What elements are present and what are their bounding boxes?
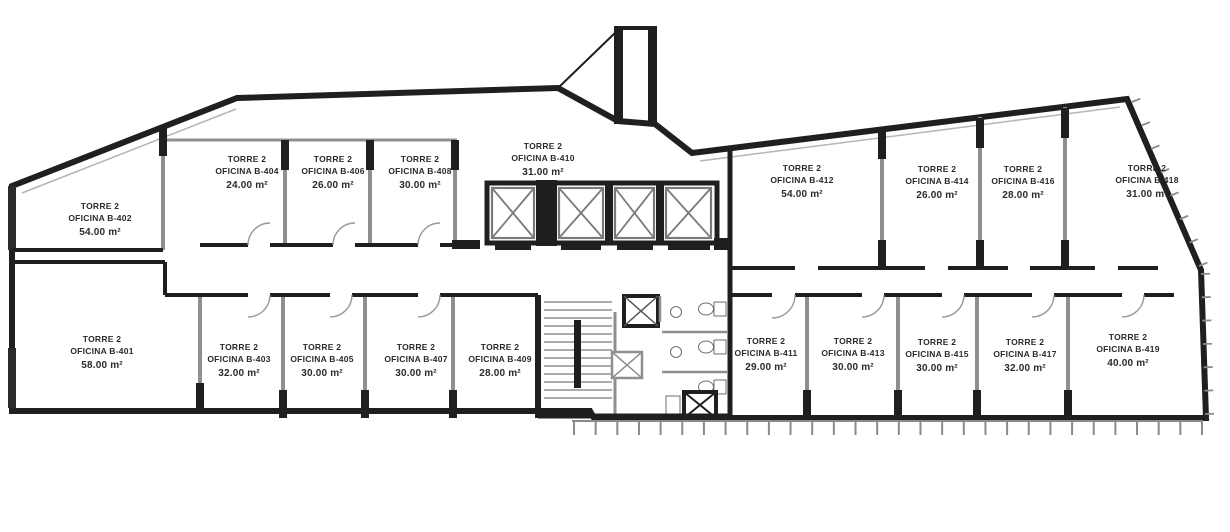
room-unit-text: OFICINA B-404	[215, 166, 278, 176]
room-area-text: 30.00 m²	[301, 368, 343, 379]
room-label-b416: TORRE 2 OFICINA B-416 28.00 m²	[991, 164, 1054, 201]
room-tower-text: TORRE 2	[918, 337, 956, 347]
room-tower-text: TORRE 2	[524, 141, 562, 151]
room-label-b413: TORRE 2 OFICINA B-413 30.00 m²	[821, 336, 884, 373]
elevator-bank	[452, 180, 730, 250]
room-area-text: 31.00 m²	[1126, 189, 1168, 200]
room-label-b402: TORRE 2 OFICINA B-402 54.00 m²	[68, 201, 131, 238]
stair-stringer	[574, 320, 581, 388]
room-area-text: 32.00 m²	[1004, 363, 1046, 374]
room-label-b409: TORRE 2 OFICINA B-409 28.00 m²	[468, 342, 531, 379]
toilet	[699, 340, 727, 354]
room-unit-text: OFICINA B-413	[821, 348, 884, 358]
room-area-text: 24.00 m²	[226, 180, 268, 191]
duct-x-box	[612, 352, 642, 378]
room-area-text: 40.00 m²	[1107, 358, 1149, 369]
room-unit-text: OFICINA B-408	[388, 166, 451, 176]
room-tower-text: TORRE 2	[918, 164, 956, 174]
room-tower-text: TORRE 2	[1006, 337, 1044, 347]
room-label-b410: TORRE 2 OFICINA B-410 31.00 m²	[511, 141, 574, 178]
room-area-text: 28.00 m²	[479, 368, 521, 379]
room-unit-text: OFICINA B-402	[68, 213, 131, 223]
roof-shaft	[614, 26, 657, 126]
room-tower-text: TORRE 2	[1109, 332, 1147, 342]
room-tower-text: TORRE 2	[783, 163, 821, 173]
room-area-text: 29.00 m²	[745, 362, 787, 373]
room-area-text: 26.00 m²	[312, 180, 354, 191]
room-tower-text: TORRE 2	[314, 154, 352, 164]
room-tower-text: TORRE 2	[834, 336, 872, 346]
room-tower-text: TORRE 2	[228, 154, 266, 164]
room-label-b406: TORRE 2 OFICINA B-406 26.00 m²	[301, 154, 364, 191]
room-area-text: 26.00 m²	[916, 190, 958, 201]
room-unit-text: OFICINA B-418	[1115, 175, 1178, 185]
room-label-b404: TORRE 2 OFICINA B-404 24.00 m²	[215, 154, 278, 191]
room-unit-text: OFICINA B-407	[384, 354, 447, 364]
duct-x-box	[624, 296, 658, 326]
room-tower-text: TORRE 2	[83, 334, 121, 344]
room-tower-text: TORRE 2	[303, 342, 341, 352]
room-tower-text: TORRE 2	[747, 336, 785, 346]
service-closet	[666, 396, 680, 416]
room-unit-text: OFICINA B-415	[905, 349, 968, 359]
room-area-text: 31.00 m²	[522, 167, 564, 178]
room-area-text: 58.00 m²	[81, 360, 123, 371]
room-area-text: 30.00 m²	[916, 363, 958, 374]
room-unit-text: OFICINA B-417	[993, 349, 1056, 359]
room-unit-text: OFICINA B-401	[70, 346, 133, 356]
room-tower-text: TORRE 2	[1128, 163, 1166, 173]
room-label-b414: TORRE 2 OFICINA B-414 26.00 m²	[905, 164, 968, 201]
room-labels: TORRE 2 OFICINA B-402 54.00 m² TORRE 2 O…	[68, 141, 1178, 379]
room-area-text: 28.00 m²	[1002, 190, 1044, 201]
room-label-b405: TORRE 2 OFICINA B-405 30.00 m²	[290, 342, 353, 379]
room-area-text: 30.00 m²	[832, 362, 874, 373]
room-label-b415: TORRE 2 OFICINA B-415 30.00 m²	[905, 337, 968, 374]
room-area-text: 54.00 m²	[79, 227, 121, 238]
floor-plan: TORRE 2 OFICINA B-402 54.00 m² TORRE 2 O…	[0, 0, 1230, 532]
room-tower-text: TORRE 2	[1004, 164, 1042, 174]
room-tower-text: TORRE 2	[481, 342, 519, 352]
room-label-b407: TORRE 2 OFICINA B-407 30.00 m²	[384, 342, 447, 379]
room-tower-text: TORRE 2	[397, 342, 435, 352]
sink	[671, 307, 682, 318]
room-label-b419: TORRE 2 OFICINA B-419 40.00 m²	[1096, 332, 1159, 369]
room-unit-text: OFICINA B-403	[207, 354, 270, 364]
room-unit-text: OFICINA B-405	[290, 354, 353, 364]
room-unit-text: OFICINA B-411	[735, 348, 798, 358]
room-label-b408: TORRE 2 OFICINA B-408 30.00 m²	[388, 154, 451, 191]
room-unit-text: OFICINA B-414	[905, 176, 968, 186]
facade-mullion-ticks-bottom	[572, 421, 1203, 435]
sink	[671, 347, 682, 358]
room-label-b417: TORRE 2 OFICINA B-417 32.00 m²	[993, 337, 1056, 374]
room-tower-text: TORRE 2	[401, 154, 439, 164]
room-label-b401: TORRE 2 OFICINA B-401 58.00 m²	[70, 334, 133, 371]
room-unit-text: OFICINA B-409	[468, 354, 531, 364]
stairwell	[538, 295, 615, 418]
toilet	[699, 302, 727, 316]
room-unit-text: OFICINA B-412	[770, 175, 833, 185]
room-area-text: 30.00 m²	[399, 180, 441, 191]
room-area-text: 54.00 m²	[781, 189, 823, 200]
room-unit-text: OFICINA B-406	[301, 166, 364, 176]
room-label-b403: TORRE 2 OFICINA B-403 32.00 m²	[207, 342, 270, 379]
room-tower-text: TORRE 2	[220, 342, 258, 352]
room-label-b411: TORRE 2 OFICINA B-411 29.00 m²	[735, 336, 798, 373]
room-unit-text: OFICINA B-416	[991, 176, 1054, 186]
room-label-b412: TORRE 2 OFICINA B-412 54.00 m²	[770, 163, 833, 200]
room-unit-text: OFICINA B-410	[511, 153, 574, 163]
wc-area	[538, 296, 730, 418]
room-area-text: 32.00 m²	[218, 368, 260, 379]
room-area-text: 30.00 m²	[395, 368, 437, 379]
room-unit-text: OFICINA B-419	[1096, 344, 1159, 354]
room-tower-text: TORRE 2	[81, 201, 119, 211]
